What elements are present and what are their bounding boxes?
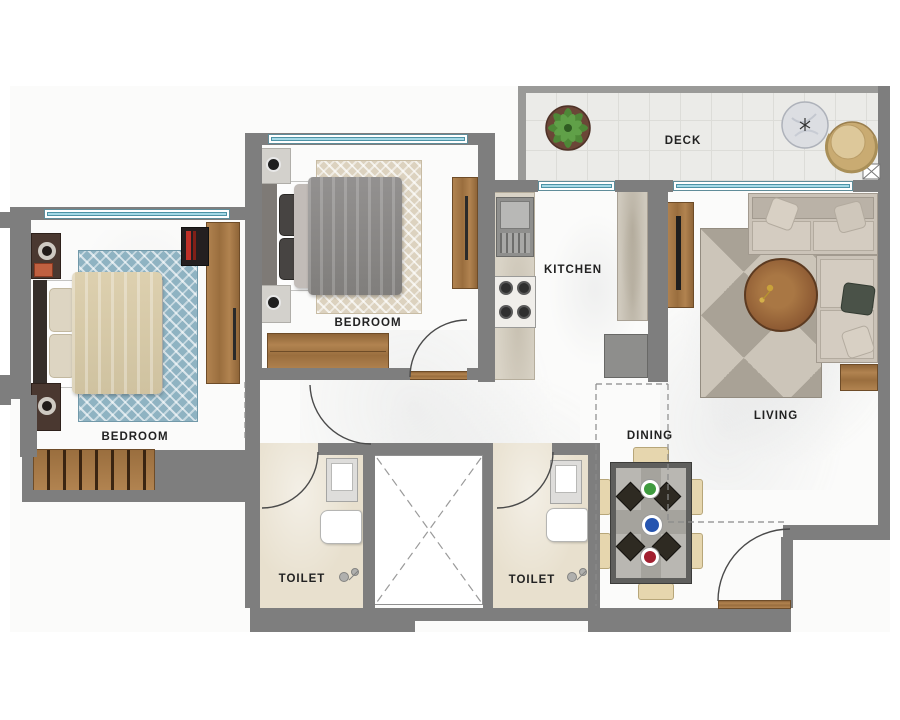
- deck-area: [524, 92, 880, 182]
- room-label-deck: DECK: [665, 135, 702, 147]
- fridge-icon: [604, 334, 648, 378]
- burner-icon: [517, 305, 531, 319]
- wc-icon: [546, 508, 588, 542]
- wall: [0, 212, 11, 228]
- dining-chair-icon: [638, 583, 674, 600]
- lamp-icon: [38, 397, 56, 415]
- tv-accent: [186, 231, 191, 260]
- window: [268, 134, 468, 144]
- duvet: [72, 272, 162, 394]
- sink-grill: [500, 233, 530, 253]
- wall: [250, 608, 415, 632]
- plate-green: [640, 479, 660, 499]
- deck-wall: [518, 86, 890, 93]
- entry-threshold: [718, 600, 791, 609]
- wall: [415, 608, 588, 621]
- wall: [363, 443, 375, 608]
- wall: [783, 525, 890, 540]
- room-label-bedroom-middle: BEDROOM: [334, 317, 401, 329]
- wall: [245, 133, 262, 380]
- wall: [467, 368, 495, 380]
- window: [538, 181, 615, 191]
- headboard: [262, 181, 277, 291]
- wall: [10, 207, 31, 399]
- tv-accent: [193, 231, 196, 260]
- room-label-living: LIVING: [754, 410, 798, 422]
- speaker-icon: [266, 295, 281, 310]
- wc-icon: [320, 510, 362, 544]
- wall: [0, 375, 11, 405]
- sink-basin: [500, 201, 530, 229]
- burner-icon: [517, 281, 531, 295]
- wardrobe-handle: [465, 196, 468, 260]
- bathroom-sink-icon: [326, 458, 358, 502]
- wall: [478, 133, 495, 382]
- headboard: [33, 280, 47, 388]
- wall: [878, 86, 890, 540]
- dresser-icon: [267, 333, 389, 371]
- wall: [588, 443, 600, 608]
- room-label-dining: DINING: [627, 430, 673, 442]
- wall: [781, 537, 793, 608]
- window: [673, 181, 853, 191]
- room-label-toilet-left: TOILET: [279, 573, 326, 585]
- counter-icon: [617, 189, 648, 321]
- floor-plan: DECK KITCHEN LIVING DINING BEDROOM BEDRO…: [0, 0, 900, 720]
- door-sill: [409, 371, 468, 380]
- service-shaft: [374, 455, 483, 605]
- bathroom-sink-icon: [550, 460, 582, 504]
- window: [44, 209, 230, 219]
- room-label-toilet-right: TOILET: [509, 574, 556, 586]
- throw-pillow: [840, 282, 876, 316]
- wall: [363, 443, 493, 455]
- burner-icon: [499, 281, 513, 295]
- side-table-icon: [840, 364, 878, 391]
- wall: [483, 443, 493, 608]
- wall: [262, 368, 410, 380]
- tv-icon: [676, 216, 681, 290]
- wall: [478, 180, 538, 192]
- wall: [245, 380, 260, 608]
- book-icon: [34, 263, 53, 277]
- dresser-line: [270, 351, 386, 352]
- room-label-kitchen: KITCHEN: [544, 264, 602, 276]
- wardrobe-handle: [233, 308, 236, 360]
- duvet: [308, 177, 402, 295]
- room-label-bedroom-left: BEDROOM: [101, 431, 168, 443]
- wall: [155, 450, 250, 502]
- wall: [588, 608, 791, 632]
- speaker-icon: [266, 157, 281, 172]
- wall: [648, 180, 668, 382]
- coffee-table-icon: [744, 258, 818, 332]
- wall: [22, 490, 163, 502]
- burner-icon: [499, 305, 513, 319]
- lamp-icon: [38, 242, 56, 260]
- plate-red: [640, 547, 660, 567]
- wardrobe-icon: [33, 449, 155, 491]
- plate-blue: [641, 514, 663, 536]
- deck-wall: [518, 86, 526, 182]
